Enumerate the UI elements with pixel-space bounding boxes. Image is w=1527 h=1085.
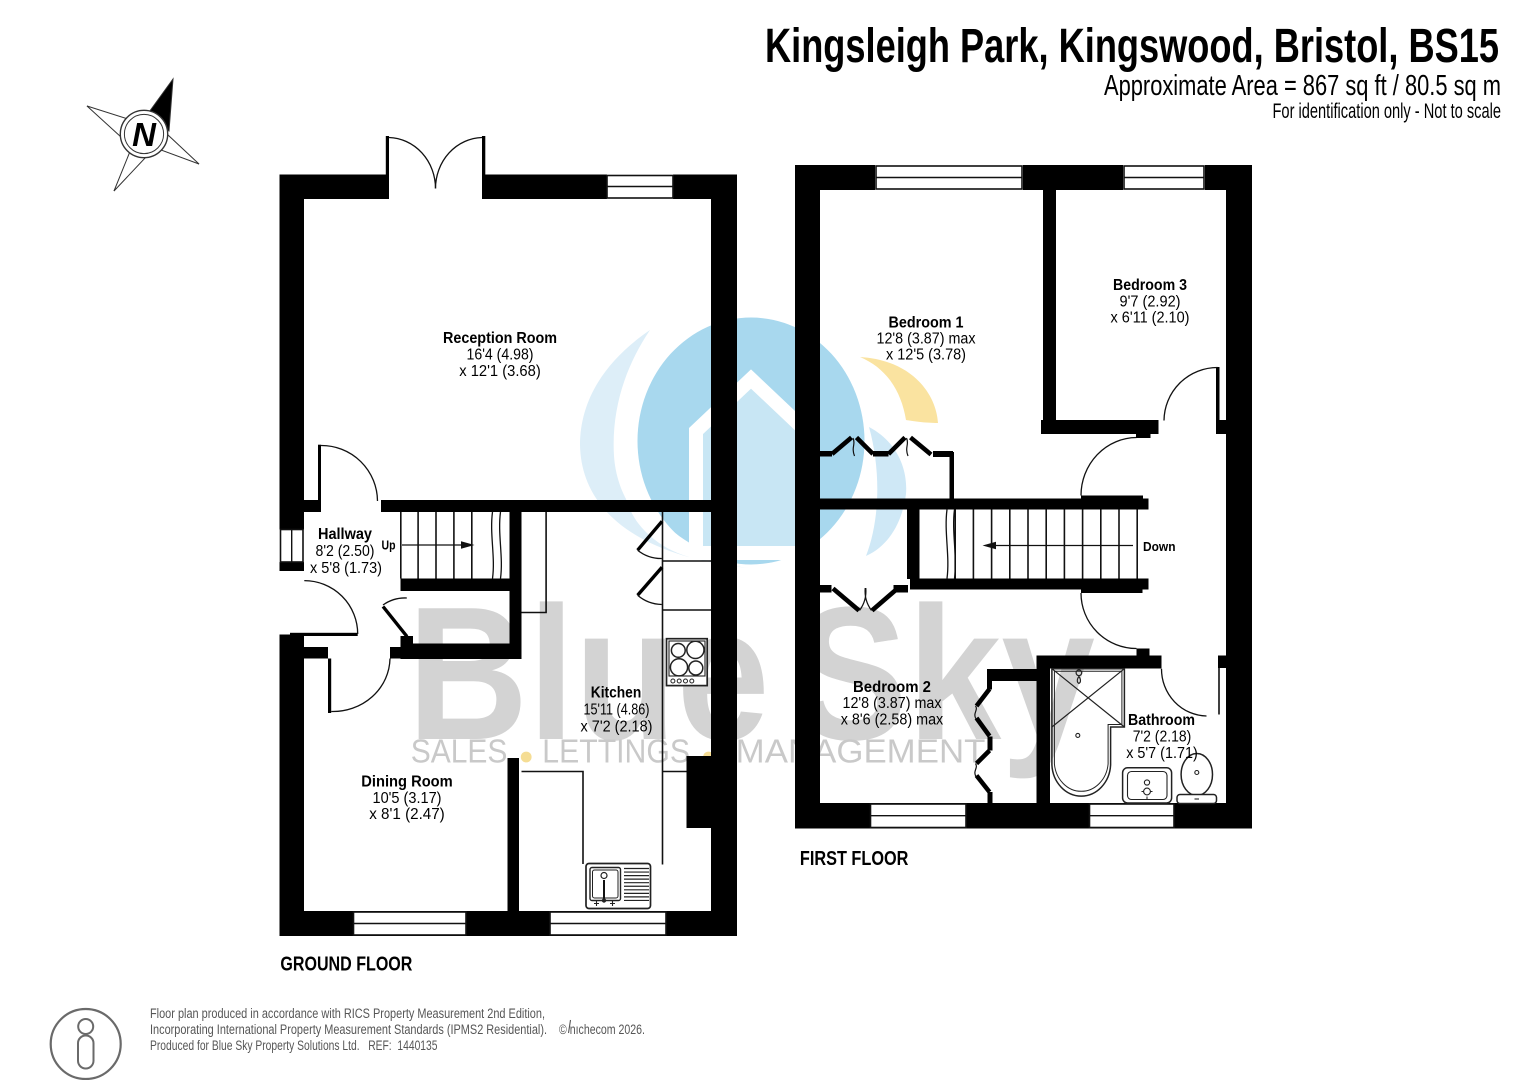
svg-text:x 5'8 (1.73): x 5'8 (1.73) (310, 560, 382, 577)
svg-text:x 12'1 (3.68): x 12'1 (3.68) (459, 363, 541, 380)
svg-text:10'5 (3.17): 10'5 (3.17) (373, 790, 442, 807)
svg-text:N: N (132, 116, 157, 153)
svg-text:Produced for Blue Sky Property: Produced for Blue Sky Property Solutions… (150, 1038, 438, 1053)
svg-text:MANAGEMENT: MANAGEMENT (736, 733, 986, 770)
svg-text:x 8'1 (2.47): x 8'1 (2.47) (369, 806, 445, 823)
svg-text:Hallway: Hallway (318, 526, 372, 543)
svg-text:7'2 (2.18): 7'2 (2.18) (1133, 729, 1192, 746)
svg-text:Down: Down (1143, 539, 1176, 554)
svg-text:12'8 (3.87) max: 12'8 (3.87) max (843, 695, 942, 712)
svg-text:x 8'6 (2.58) max: x 8'6 (2.58) max (841, 712, 944, 729)
svg-text:LETTINGS: LETTINGS (542, 733, 690, 770)
svg-text:Bedroom 2: Bedroom 2 (853, 679, 931, 696)
svg-text:Bathroom: Bathroom (1128, 712, 1195, 729)
svg-text:12'8 (3.87) max: 12'8 (3.87) max (877, 331, 976, 348)
svg-text:Incorporating International Pr: Incorporating International Property Mea… (150, 1022, 547, 1037)
svg-text:Reception Room: Reception Room (443, 330, 557, 347)
svg-text:x 6'11 (2.10): x 6'11 (2.10) (1111, 310, 1190, 327)
svg-text:Bedroom 3: Bedroom 3 (1113, 277, 1187, 294)
svg-text:FIRST FLOOR: FIRST FLOOR (800, 848, 909, 870)
svg-text:Up: Up (382, 538, 396, 553)
svg-text:x 7'2 (2.18): x 7'2 (2.18) (581, 719, 653, 736)
svg-text:Approximate Area = 867 sq ft /: Approximate Area = 867 sq ft / 80.5 sq m (1104, 70, 1501, 102)
svg-text:16'4 (4.98): 16'4 (4.98) (467, 347, 534, 364)
svg-text:x 5'7 (1.71): x 5'7 (1.71) (1126, 745, 1198, 762)
svg-text:GROUND FLOOR: GROUND FLOOR (280, 954, 412, 976)
svg-text:Dining Room: Dining Room (361, 774, 453, 791)
svg-text:Floor plan produced in accorda: Floor plan produced in accordance with R… (150, 1006, 545, 1021)
svg-text:Kitchen: Kitchen (591, 685, 642, 702)
svg-text:15'11 (4.86): 15'11 (4.86) (584, 702, 650, 719)
svg-text:For identification only - Not: For identification only - Not to scale (1273, 100, 1502, 123)
svg-text:© nıchecom 2026.: © nıchecom 2026. (559, 1022, 645, 1037)
svg-text:Kingsleigh Park, Kingswood, Br: Kingsleigh Park, Kingswood, Bristol, BS1… (765, 20, 1499, 73)
svg-text:Bedroom 1: Bedroom 1 (889, 315, 964, 332)
svg-text:8'2 (2.50): 8'2 (2.50) (316, 543, 375, 560)
svg-text:9'7 (2.92): 9'7 (2.92) (1120, 294, 1181, 311)
svg-text:x 12'5 (3.78): x 12'5 (3.78) (886, 347, 966, 364)
svg-text:SALES: SALES (411, 733, 508, 770)
